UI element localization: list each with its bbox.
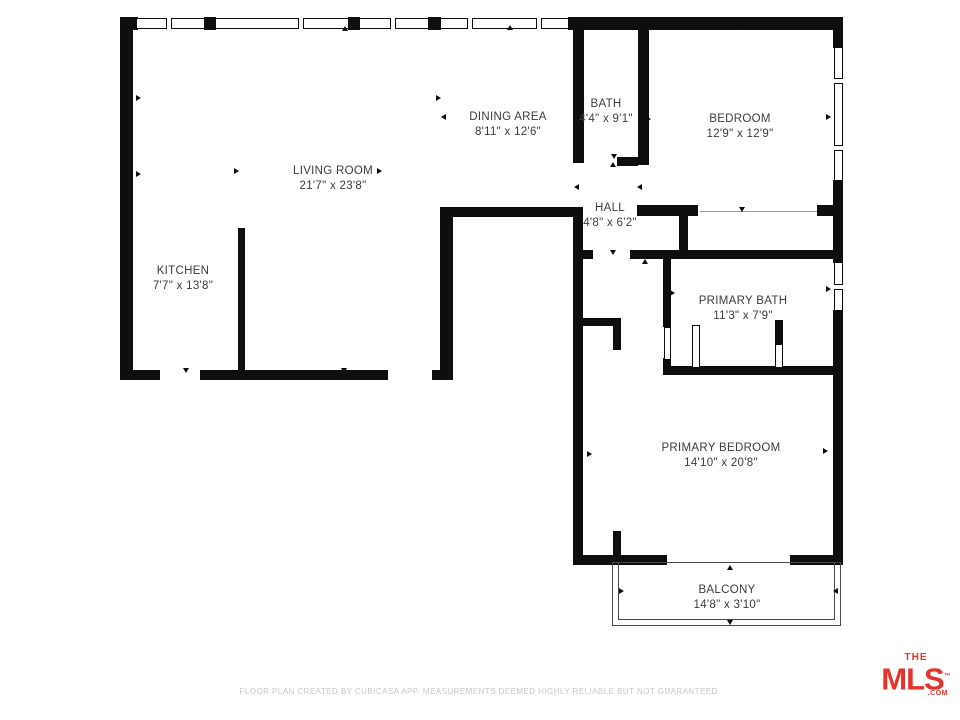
swing-arrow-icon [377,168,382,174]
swing-arrow-icon [619,588,624,594]
room-dims: 7'7" x 13'8" [153,279,213,294]
swing-arrow-icon [574,184,579,190]
swing-arrow-icon [823,448,828,454]
wall [573,250,593,259]
swing-arrow-icon [833,588,838,594]
swing-arrow-icon [611,154,617,159]
window-divider-icon [834,78,843,84]
room-dims: 14'8" x 3'10" [694,598,761,613]
wall [440,207,583,217]
wall [238,228,245,378]
window-divider-icon [166,18,172,29]
pocket-door [664,327,671,360]
room-name: BEDROOM [707,112,774,127]
swing-arrow-icon [610,162,616,167]
wall [833,17,843,48]
room-label-dining-area: DINING AREA 8'11" x 12'6" [469,110,546,140]
door-leaf [775,344,783,368]
floor-plan-canvas: LIVING ROOM 21'7" x 23'8" DINING AREA 8'… [0,0,960,720]
trademark-symbol: ™ [944,673,951,680]
wall [613,326,621,350]
room-label-primary-bath: PRIMARY BATH 11'3" x 7'9" [699,294,788,324]
room-dims: 11'3" x 7'9" [699,309,788,324]
disclaimer-text: FLOOR PLAN CREATED BY CUBICASA APP. MEAS… [0,687,960,696]
wall [200,370,388,380]
wall [573,207,583,565]
wall [120,17,133,380]
room-name: HALL [583,201,637,216]
swing-arrow-icon [670,290,675,296]
window-divider-icon [536,18,542,29]
swing-arrow-icon [826,114,831,120]
room-label-hall: HALL 4'8" x 6'2" [583,201,637,231]
window-post [204,17,216,30]
swing-arrow-icon [136,95,141,101]
window-divider-icon [390,18,396,29]
room-name: LIVING ROOM [293,164,373,179]
wall [440,207,453,380]
wall [630,250,843,259]
swing-arrow-icon [637,184,642,190]
swing-arrow-icon [739,24,745,29]
wall [679,216,688,254]
window-divider-icon [298,18,304,29]
swing-arrow-icon [579,90,584,96]
swing-arrow-icon [183,368,189,373]
swing-arrow-icon [727,565,733,570]
window-post [348,17,360,30]
room-name: PRIMARY BEDROOM [661,441,780,456]
swing-arrow-icon [727,620,733,625]
themls-logo: THE MLS™ .COM [878,653,954,697]
window-divider-icon [834,284,843,290]
swing-arrow-icon [739,207,745,212]
closet-rod-line [700,211,817,212]
room-name: KITCHEN [153,264,213,279]
swing-arrow-icon [641,555,647,560]
room-name: DINING AREA [469,110,546,125]
room-label-primary-bedroom: PRIMARY BEDROOM 14'10" x 20'8" [661,441,780,471]
swing-arrow-icon [136,171,141,177]
swing-arrow-icon [642,259,648,264]
window-bedroom-east [834,48,843,180]
room-label-bedroom: BEDROOM 12'9" x 12'9" [707,112,774,142]
swing-arrow-icon [507,25,513,30]
room-name: BALCONY [694,583,761,598]
wall [613,531,621,557]
room-name: PRIMARY BATH [699,294,788,309]
logo-mls-text: MLS™ [878,664,954,692]
room-name: BATH [579,97,633,112]
room-dims: 4'8" x 6'2" [583,216,637,231]
swing-arrow-icon [436,95,441,101]
room-label-kitchen: KITCHEN 7'7" x 13'8" [153,264,213,294]
wall [833,310,843,565]
wall [663,366,843,375]
room-label-balcony: BALCONY 14'8" x 3'10" [694,583,761,613]
swing-arrow-icon [646,116,651,122]
wall [833,180,843,263]
door-leaf [692,325,700,368]
window-post [428,17,441,30]
window-divider-icon [834,145,843,151]
swing-arrow-icon [587,451,592,457]
room-dims: 14'10" x 20'8" [661,456,780,471]
wall [617,157,638,166]
swing-arrow-icon [341,368,347,373]
room-dims: 21'7" x 23'8" [293,179,373,194]
wall [637,205,698,216]
room-dims: 8'11" x 12'6" [469,125,546,140]
swing-arrow-icon [610,250,616,255]
swing-arrow-icon [234,168,239,174]
swing-arrow-icon [342,26,348,31]
swing-arrow-icon [441,114,446,120]
room-label-living-room: LIVING ROOM 21'7" x 23'8" [293,164,373,194]
window-divider-icon [467,18,473,29]
wall [120,370,160,380]
wall [568,17,843,30]
room-dims: 4'4" x 9'1" [579,112,633,127]
room-label-bath: BATH 4'4" x 9'1" [579,97,633,127]
swing-arrow-icon [826,286,831,292]
swing-arrow-icon [641,90,646,96]
wall [583,318,621,326]
room-dims: 12'9" x 12'9" [707,127,774,142]
